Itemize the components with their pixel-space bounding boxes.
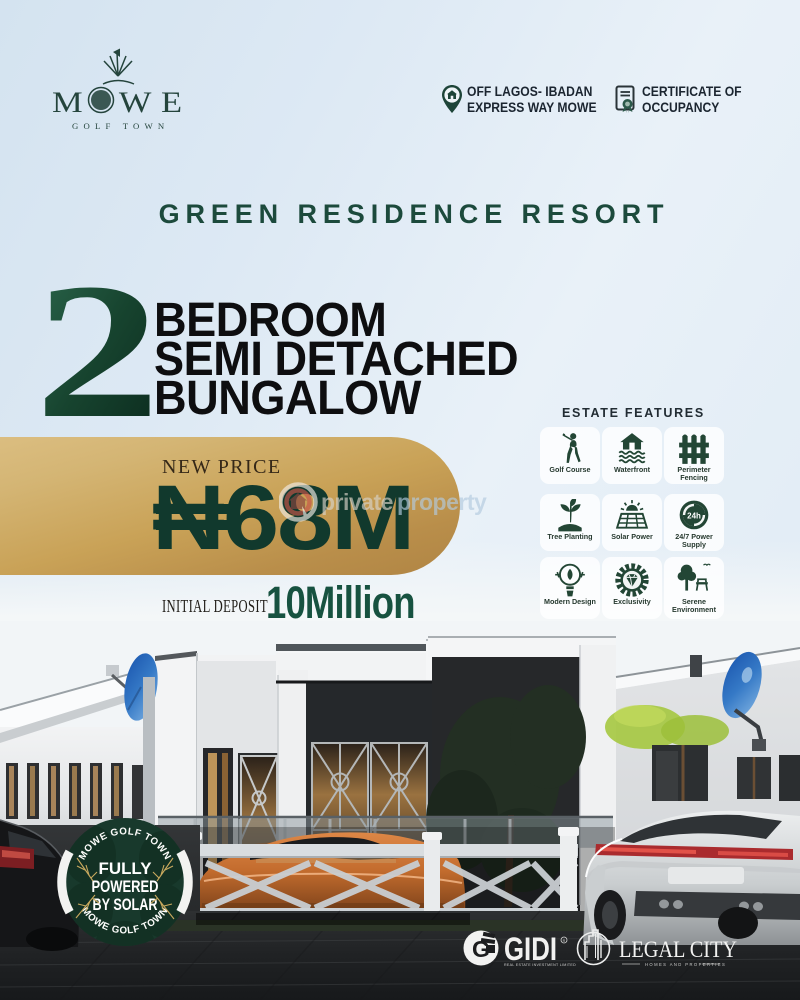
svg-text:LEGAL CITY: LEGAL CITY: [619, 937, 737, 962]
svg-text:POWERED: POWERED: [92, 878, 159, 896]
svg-text:GOLF TOWN: GOLF TOWN: [72, 121, 169, 131]
svg-text:E: E: [161, 85, 182, 118]
svg-text:private: private: [321, 489, 393, 515]
svg-text:BY SOLAR: BY SOLAR: [93, 896, 158, 914]
svg-text:W: W: [119, 85, 152, 118]
svg-text:HOMES AND PROPERTIES: HOMES AND PROPERTIES: [645, 962, 726, 967]
svg-text:FULLY: FULLY: [99, 860, 152, 878]
svg-text:GIDI: GIDI: [504, 931, 557, 967]
svg-text:2: 2: [35, 243, 160, 430]
svg-text:M: M: [52, 85, 83, 118]
svg-text:24h: 24h: [687, 511, 701, 520]
svg-text:REAL ESTATE INVESTMENT LIMITED: REAL ESTATE INVESTMENT LIMITED: [504, 963, 576, 967]
svg-text:property: property: [397, 489, 487, 515]
